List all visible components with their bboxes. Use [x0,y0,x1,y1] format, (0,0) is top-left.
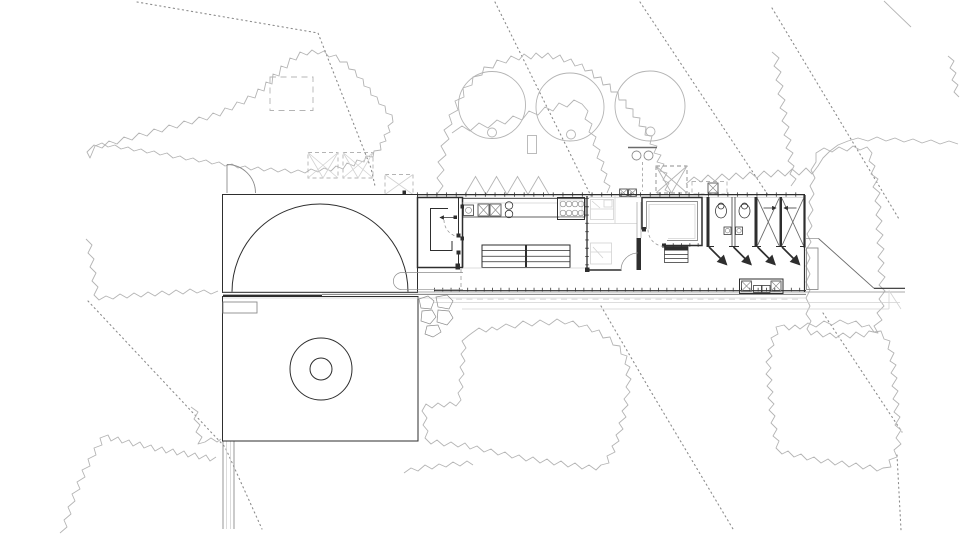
entry-gate-door [227,165,256,194]
terrace-outline [223,297,419,442]
dining-table [482,245,570,268]
tree [459,72,526,139]
site-plan-canvas: Architectural site plan [0,0,960,535]
bathroom-wall [707,197,710,247]
tree-canopy-outline [422,319,631,470]
door-swing-arrow [758,247,776,265]
stall-cross-brace [782,199,804,246]
stepping-stone [437,310,453,325]
fire-pit-outer [290,338,352,400]
deck-door-arrows [709,247,800,265]
double-sink [505,202,513,218]
door-swing-arrow [709,247,727,265]
entry-hedge [393,273,463,290]
bedroom-furniture [589,196,637,264]
tree-canopy-outline [87,50,393,173]
bathrooms [707,197,806,247]
dashed-roof-marker [656,166,687,193]
tree-canopy-outline [191,407,221,444]
stepping-stone [425,325,441,337]
wc-room [418,198,465,290]
planter-step [223,302,257,313]
dashed-roof-marker [308,153,338,179]
north-wall [417,195,805,198]
stepping-stone [421,310,436,324]
door-swing-arrow [782,247,800,265]
terrace-outline [223,195,418,293]
tree-canopy-outline [86,239,218,300]
tree [536,73,604,141]
garden-stool [632,151,641,160]
boundary-line [772,8,899,219]
stall-cross-brace [758,199,780,246]
boundary-line [88,301,262,529]
dashed-roof-markers [270,77,727,197]
tree [615,71,685,141]
tree-canopy-outline [766,320,901,471]
stall-wall [780,197,783,247]
garden-stool [644,151,653,160]
door-swing-arrow [734,247,752,265]
bedroom [585,196,641,272]
tree-canopy-circle [615,71,685,141]
cooktop [478,204,501,216]
boundary-line [823,313,902,432]
tree-trunk [646,127,655,136]
sliding-door-pocket [637,202,642,270]
boundary-line [897,455,901,530]
upper-terrace [223,165,418,293]
wash-basin [724,227,743,235]
planter-box [528,136,537,154]
boundary-line [601,306,733,529]
contour-line [884,1,911,27]
toilet [739,203,750,218]
stepping-stones [419,295,453,337]
shower-stalls [758,197,804,247]
ramp-edge [819,239,875,289]
tree-canopies [60,50,959,533]
fire-pit-inner [310,358,332,380]
tree-canopy-outline [60,435,216,533]
deck-bench [740,279,784,294]
dashed-roof-marker [343,153,373,179]
tree-canopy-circle [536,73,604,141]
lower-terrace [223,297,419,442]
tree-canopy-outline [948,56,959,97]
lounge-room [642,198,702,263]
building [223,165,906,530]
stepping-stone [436,295,453,309]
column-marker [403,191,407,195]
dashed-roof-marker [692,182,727,195]
tree-canopy-outline [404,461,473,473]
bedroom-door [621,253,638,270]
range-hob [558,198,585,220]
tree-trunk [567,130,576,139]
kitchen-sink [464,205,474,216]
dashed-roof-marker [385,175,413,195]
boundary-line [495,2,591,196]
toilet [716,203,727,218]
tree-canopy-outline [686,137,958,184]
sawtooth-roof-line [465,177,549,195]
site-plan-drawing: Architectural site plan [0,0,960,535]
lounge-walls-inner [647,202,698,241]
wc-privacy-wall [431,209,453,251]
trees [459,71,686,141]
tree-canopy-outline [772,52,796,186]
garden-table [628,148,657,192]
steps [665,247,689,263]
dashed-plot-square [270,77,313,111]
vent-marker [620,189,637,197]
kitchen [456,198,588,270]
tree-trunk [488,128,497,137]
bathroom-wall [755,197,758,247]
boundary-dotted-lines [88,1,911,530]
lawn-semicircle [232,204,408,292]
tree-canopy-outline [452,100,610,193]
